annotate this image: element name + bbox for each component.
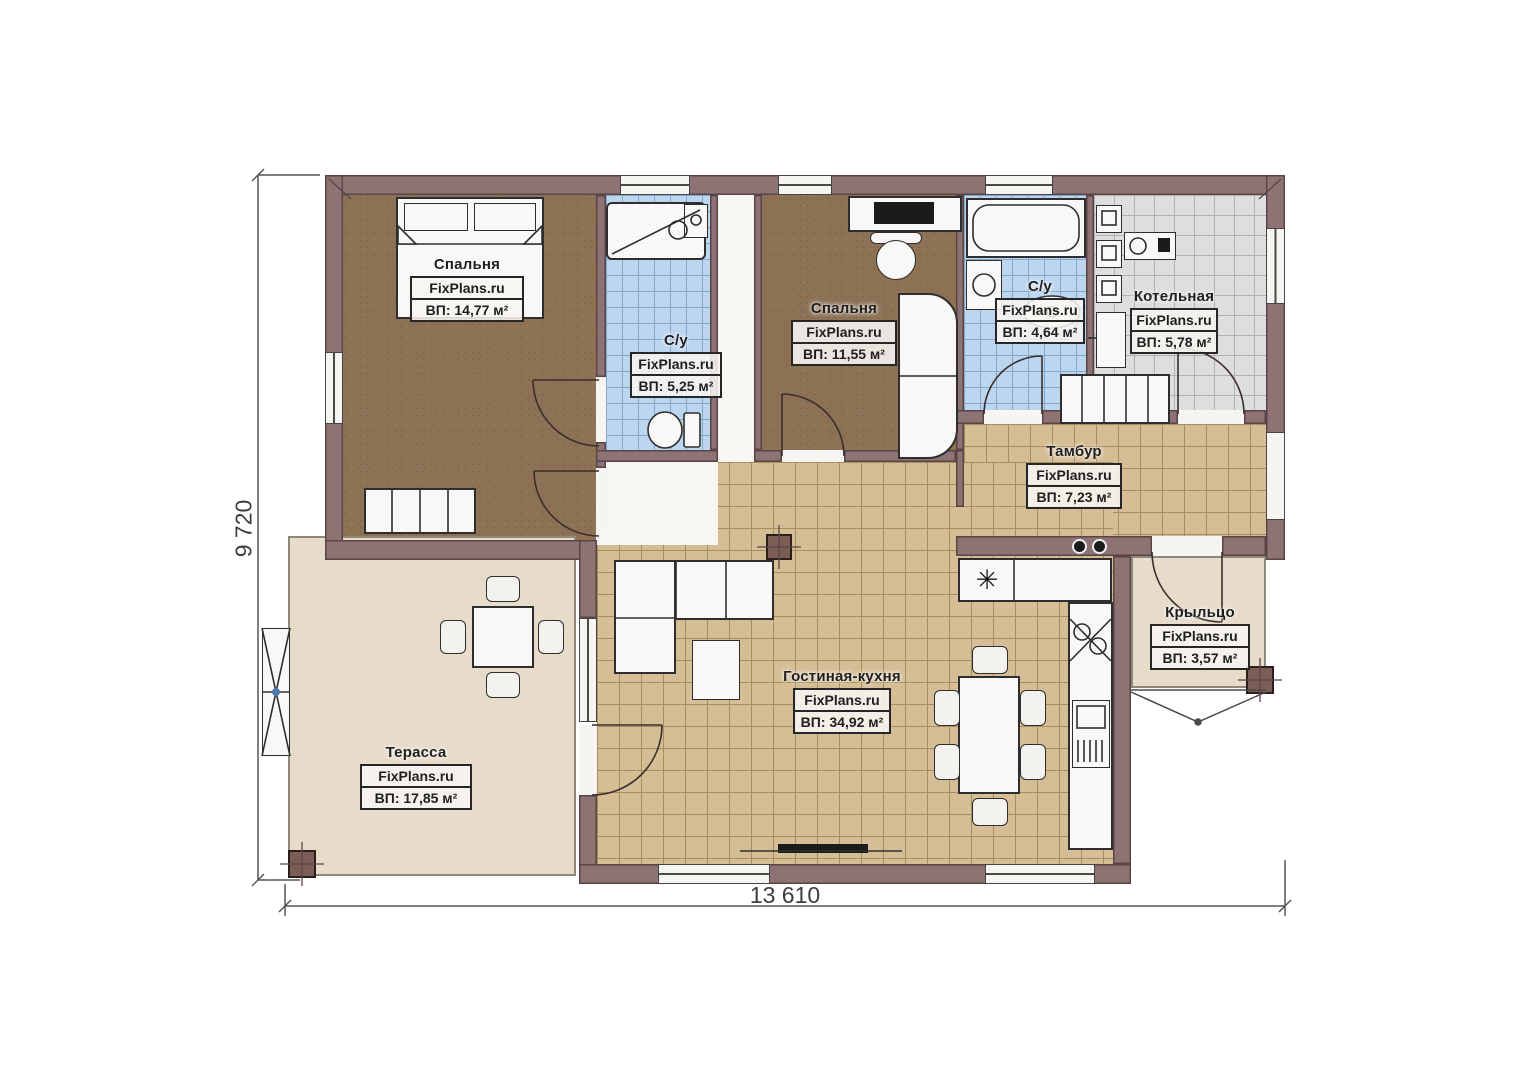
dimension-height: 9 720 [231,484,258,574]
dining-chair [1020,690,1046,726]
door-opening-bedroom2 [782,450,844,462]
room-area: ВП: 17,85 м² [362,786,470,808]
room-area: ВП: 4,64 м² [997,320,1083,342]
pillow [404,203,468,231]
room-area: ВП: 34,92 м² [795,710,889,732]
dining-chair [972,646,1008,674]
bathtub [966,198,1086,258]
window-east-boiler [1266,228,1285,304]
sofa-vertical [614,560,676,674]
door-opening-bathroom2 [984,410,1042,424]
corridor-floor [718,195,754,462]
desk-computer [874,202,934,224]
window-north-2 [778,175,832,195]
wall-bedroom1-south [325,540,597,560]
vestibule-wardrobe [1060,374,1170,424]
door-opening-porch [1152,536,1222,556]
room-name: С/у [995,278,1085,295]
room-label-porch: Крыльцо FixPlans.ru ВП: 3,57 м² [1150,604,1250,670]
boiler-equipment-box [1096,205,1122,233]
room-name: Спальня [791,300,897,317]
dining-chair [934,744,960,780]
terrace-chair [486,672,520,698]
wall-living-west-upper [579,540,597,618]
room-name: С/у [630,332,722,349]
column [766,534,792,560]
room-info-box: FixPlans.ru ВП: 7,23 м² [1026,463,1122,509]
window-south-2 [985,864,1095,884]
room-info-box: FixPlans.ru ВП: 5,78 м² [1130,308,1218,354]
watermark: FixPlans.ru [632,354,720,374]
watermark: FixPlans.ru [1028,465,1120,485]
dining-table [958,676,1020,794]
room-info-box: FixPlans.ru ВП: 4,64 м² [995,298,1085,344]
terrace-chair [440,620,466,654]
room-area: ВП: 3,57 м² [1152,646,1248,668]
terrace-floor [288,536,576,876]
wardrobe-bedroom1 [364,488,476,534]
room-name: Тамбур [1026,443,1122,460]
tv [778,844,868,853]
wall-vestibule-west-stub [956,450,964,507]
wall-mounted-boiler-dial [1072,539,1087,554]
watermark: FixPlans.ru [795,690,889,710]
boiler-unit [1158,238,1170,252]
room-label-bedroom-2: Спальня FixPlans.ru ВП: 11,55 м² [791,300,897,366]
dining-chair [1020,744,1046,780]
room-label-bedroom-1: Спальня FixPlans.ru ВП: 14,77 м² [410,256,524,322]
room-label-terrace: Терасса FixPlans.ru ВП: 17,85 м² [360,744,472,810]
entrance-door [1266,432,1285,520]
watermark: FixPlans.ru [362,766,470,786]
wall-bedroom2-south-west [754,450,782,462]
room-info-box: FixPlans.ru ВП: 34,92 м² [793,688,891,734]
room-name: Крыльцо [1150,604,1250,621]
wall-vestibule-south-west [956,536,1152,556]
terrace-table [472,606,534,668]
terrace-stairs [262,628,290,756]
daybed [898,293,958,459]
dimension-width: 13 610 [725,882,845,909]
boiler-tank [1096,312,1126,368]
wall-vestibule-south-east [1222,536,1266,556]
door-opening-ensuite [596,377,606,442]
wall-living-east [1113,556,1131,864]
door-opening-terrace [579,725,597,795]
door-opening-boiler [1178,410,1244,424]
watermark: FixPlans.ru [1152,626,1248,646]
floor-plan: ✳ [0,0,1528,1080]
watermark: FixPlans.ru [793,322,895,342]
room-label-living-kitchen: Гостиная-кухня FixPlans.ru ВП: 34,92 м² [782,668,902,734]
boiler-equipment-box [1096,275,1122,303]
watermark: FixPlans.ru [412,278,522,298]
window-west-bedroom1 [325,352,343,424]
pillow [474,203,536,231]
room-info-box: FixPlans.ru ВП: 3,57 м² [1150,624,1250,670]
wall-bathroom1-south [596,450,718,462]
room-label-boiler-room: Котельная FixPlans.ru ВП: 5,78 м² [1130,288,1218,354]
window-north-3 [985,175,1053,195]
room-name: Котельная [1130,288,1218,305]
room-name: Терасса [360,744,472,761]
wall-mounted-boiler-dial [1092,539,1107,554]
hall-floor [597,462,718,545]
watermark: FixPlans.ru [1132,310,1216,330]
bathroom1-sink [684,204,708,238]
room-area: ВП: 7,23 м² [1028,485,1120,507]
wall-vestibule-north-a [956,410,984,424]
room-label-vestibule: Тамбур FixPlans.ru ВП: 7,23 м² [1026,443,1122,509]
window-south-1 [658,864,770,884]
window-north-1 [620,175,690,195]
room-info-box: FixPlans.ru ВП: 14,77 м² [410,276,524,322]
coffee-table [692,640,740,700]
room-info-box: FixPlans.ru ВП: 11,55 м² [791,320,897,366]
dining-chair [934,690,960,726]
room-info-box: FixPlans.ru ВП: 5,25 м² [630,352,722,398]
wall-bedroom1-east-upper [596,195,606,377]
room-area: ВП: 14,77 м² [412,298,522,320]
fridge-icon: ✳ [966,560,1008,600]
room-label-bathroom-2: С/у FixPlans.ru ВП: 4,64 м² [995,278,1085,344]
room-info-box: FixPlans.ru ВП: 17,85 м² [360,764,472,810]
room-area: ВП: 5,25 м² [632,374,720,396]
column [1246,666,1274,694]
dining-chair [972,798,1008,826]
porch-canopy [1131,690,1266,725]
column [288,850,316,878]
dishwasher [1072,700,1110,768]
desk-chair [876,240,916,280]
room-label-bathroom-1: С/у FixPlans.ru ВП: 5,25 м² [630,332,722,398]
room-area: ВП: 11,55 м² [793,342,895,364]
room-name: Гостиная-кухня [782,668,902,685]
terrace-chair [538,620,564,654]
wall-bedroom2-west [754,195,762,450]
room-name: Спальня [410,256,524,273]
wall-bathroom1-east [710,195,718,450]
room-area: ВП: 5,78 м² [1132,330,1216,352]
door-opening-bedroom1 [596,468,606,535]
wall-vestibule-north-c [1244,410,1266,424]
terrace-chair [486,576,520,602]
watermark: FixPlans.ru [997,300,1083,320]
window-living-terrace [579,618,597,722]
boiler-equipment-box [1096,240,1122,268]
